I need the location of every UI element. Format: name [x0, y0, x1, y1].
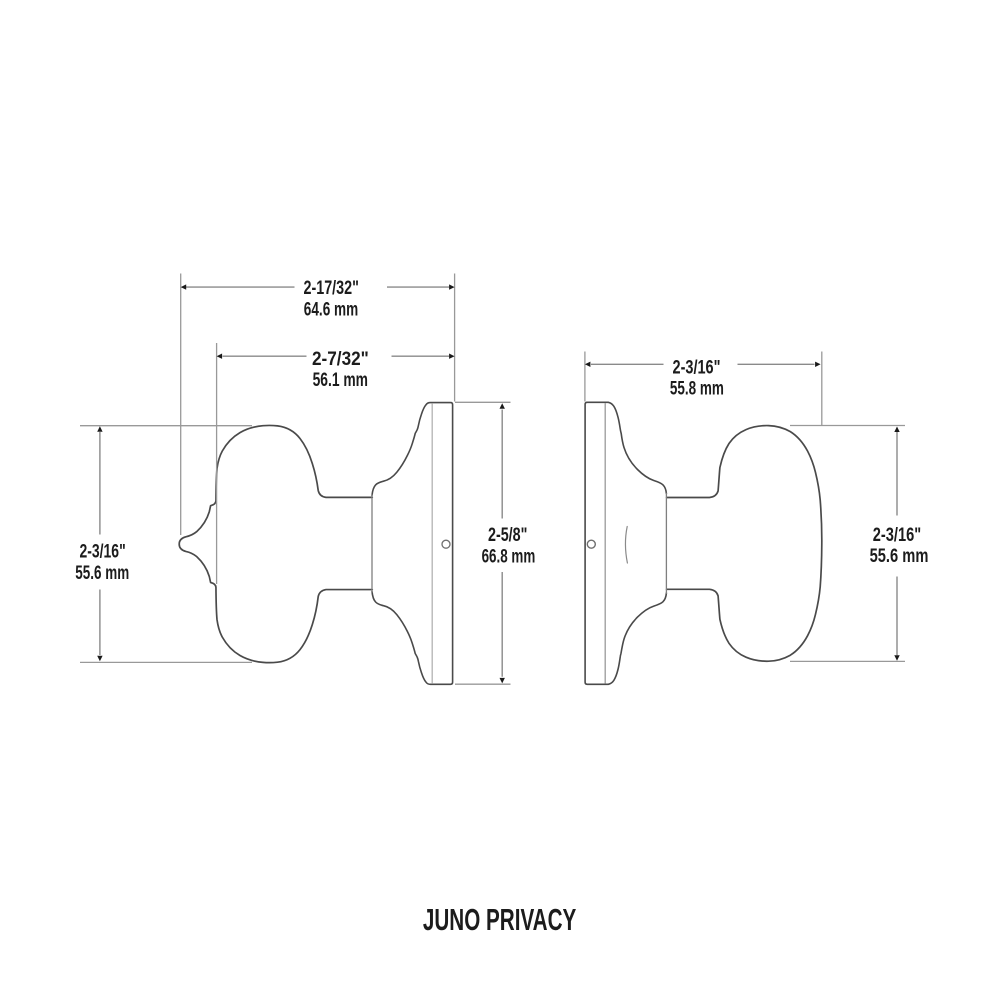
- svg-text:2-3/16": 2-3/16": [673, 357, 721, 378]
- svg-text:JUNO PRIVACY: JUNO PRIVACY: [423, 904, 576, 937]
- svg-text:2-3/16": 2-3/16": [873, 525, 921, 546]
- svg-text:64.6 mm: 64.6 mm: [304, 300, 358, 321]
- svg-text:2-5/8": 2-5/8": [488, 525, 527, 546]
- svg-text:2-7/32": 2-7/32": [312, 349, 369, 370]
- svg-text:55.6 mm: 55.6 mm: [75, 563, 129, 584]
- svg-text:2-17/32": 2-17/32": [304, 278, 359, 299]
- svg-text:55.8 mm: 55.8 mm: [670, 378, 724, 399]
- svg-text:56.1 mm: 56.1 mm: [313, 370, 368, 391]
- svg-text:66.8 mm: 66.8 mm: [482, 546, 536, 567]
- svg-text:2-3/16": 2-3/16": [80, 541, 126, 562]
- svg-text:55.6 mm: 55.6 mm: [870, 546, 929, 567]
